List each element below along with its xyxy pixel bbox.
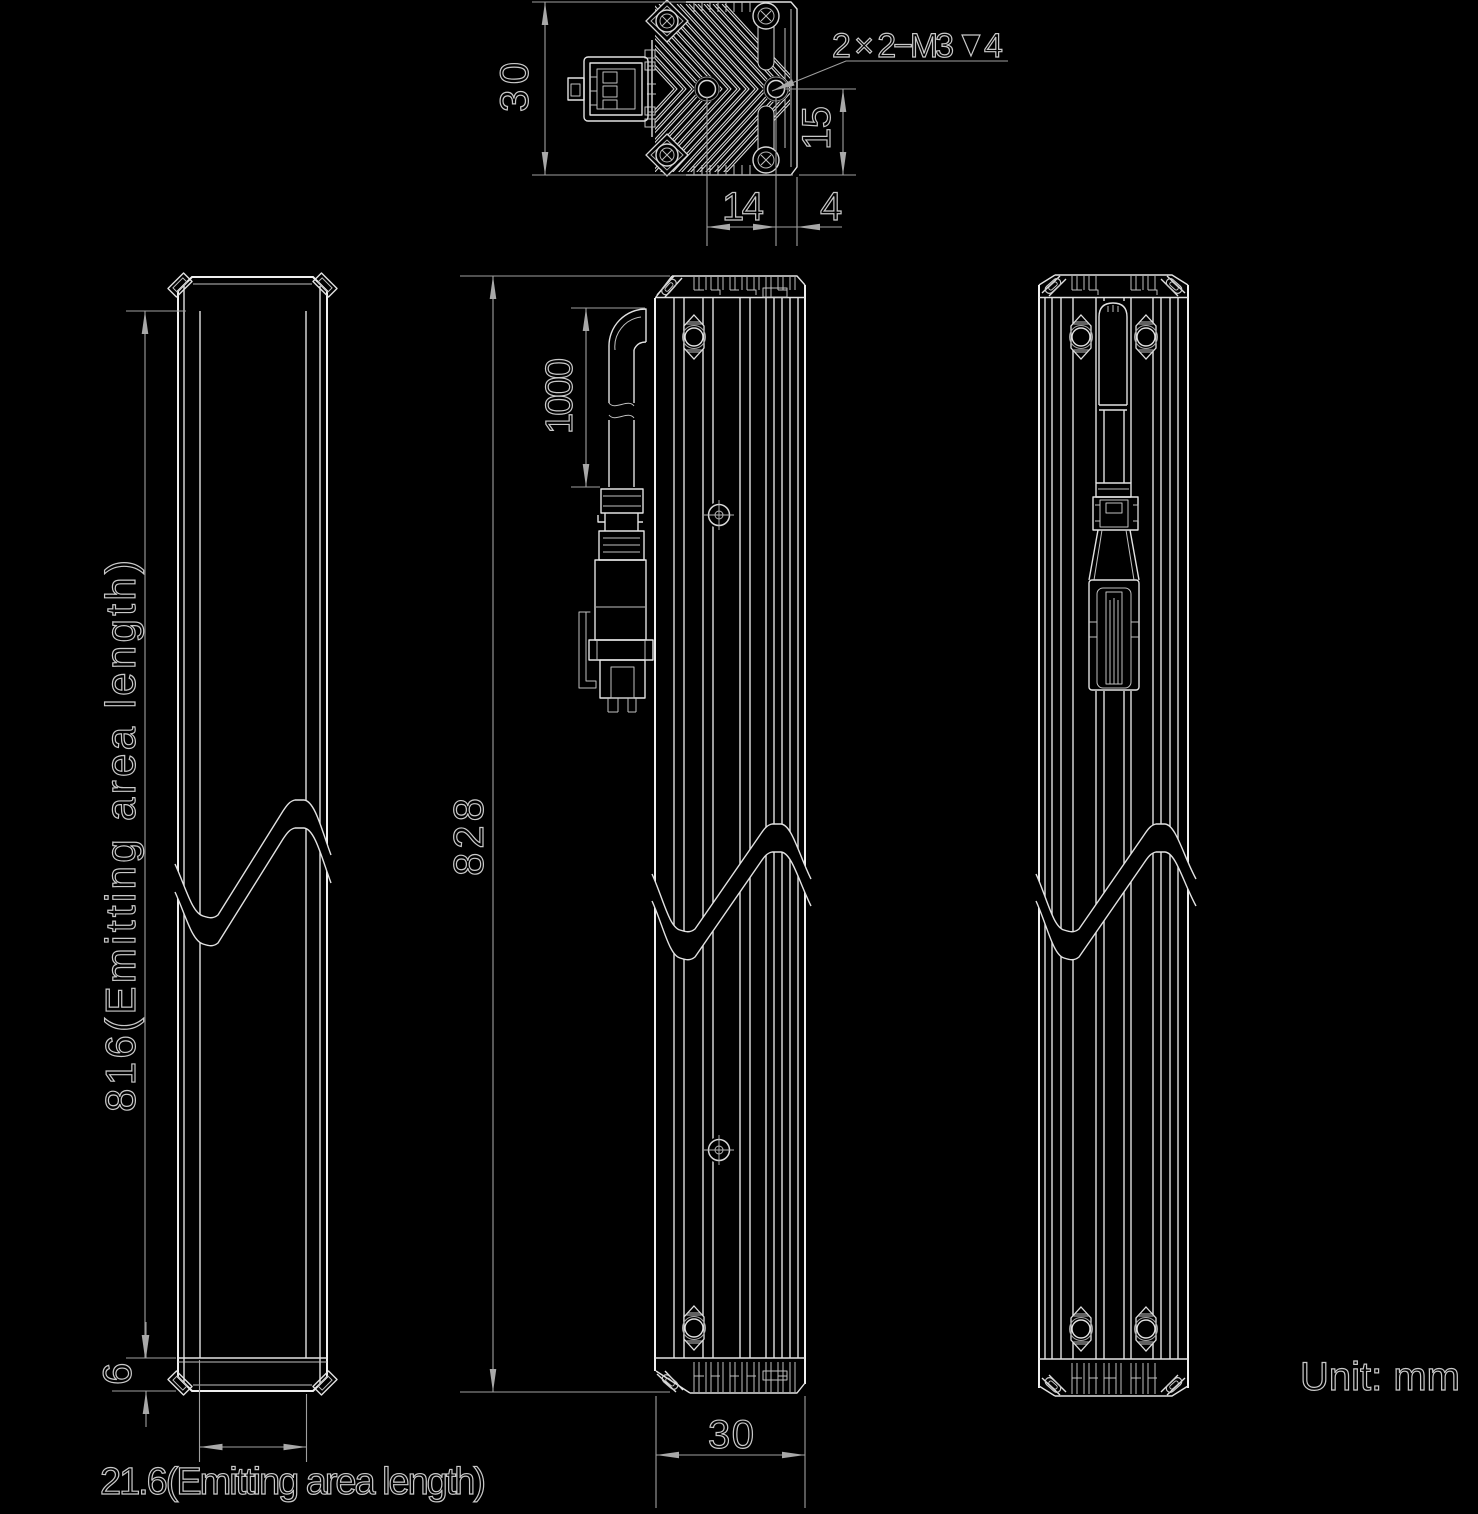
svg-text:21.6(Emitting area length): 21.6(Emitting area length)	[100, 1461, 486, 1503]
svg-text:Unit: mm: Unit: mm	[1300, 1355, 1460, 1399]
svg-text:4: 4	[984, 27, 1003, 65]
svg-text:6: 6	[96, 1363, 140, 1385]
svg-text:2 × 2−M3: 2 × 2−M3	[832, 27, 954, 65]
svg-text:30: 30	[708, 1413, 754, 1457]
svg-text:828: 828	[445, 798, 492, 876]
svg-text:1000: 1000	[539, 358, 581, 434]
svg-text:15: 15	[795, 106, 839, 150]
svg-text:4: 4	[820, 185, 842, 229]
svg-text:14: 14	[722, 185, 764, 229]
svg-text:816(Emitting area length): 816(Emitting area length)	[97, 560, 144, 1112]
